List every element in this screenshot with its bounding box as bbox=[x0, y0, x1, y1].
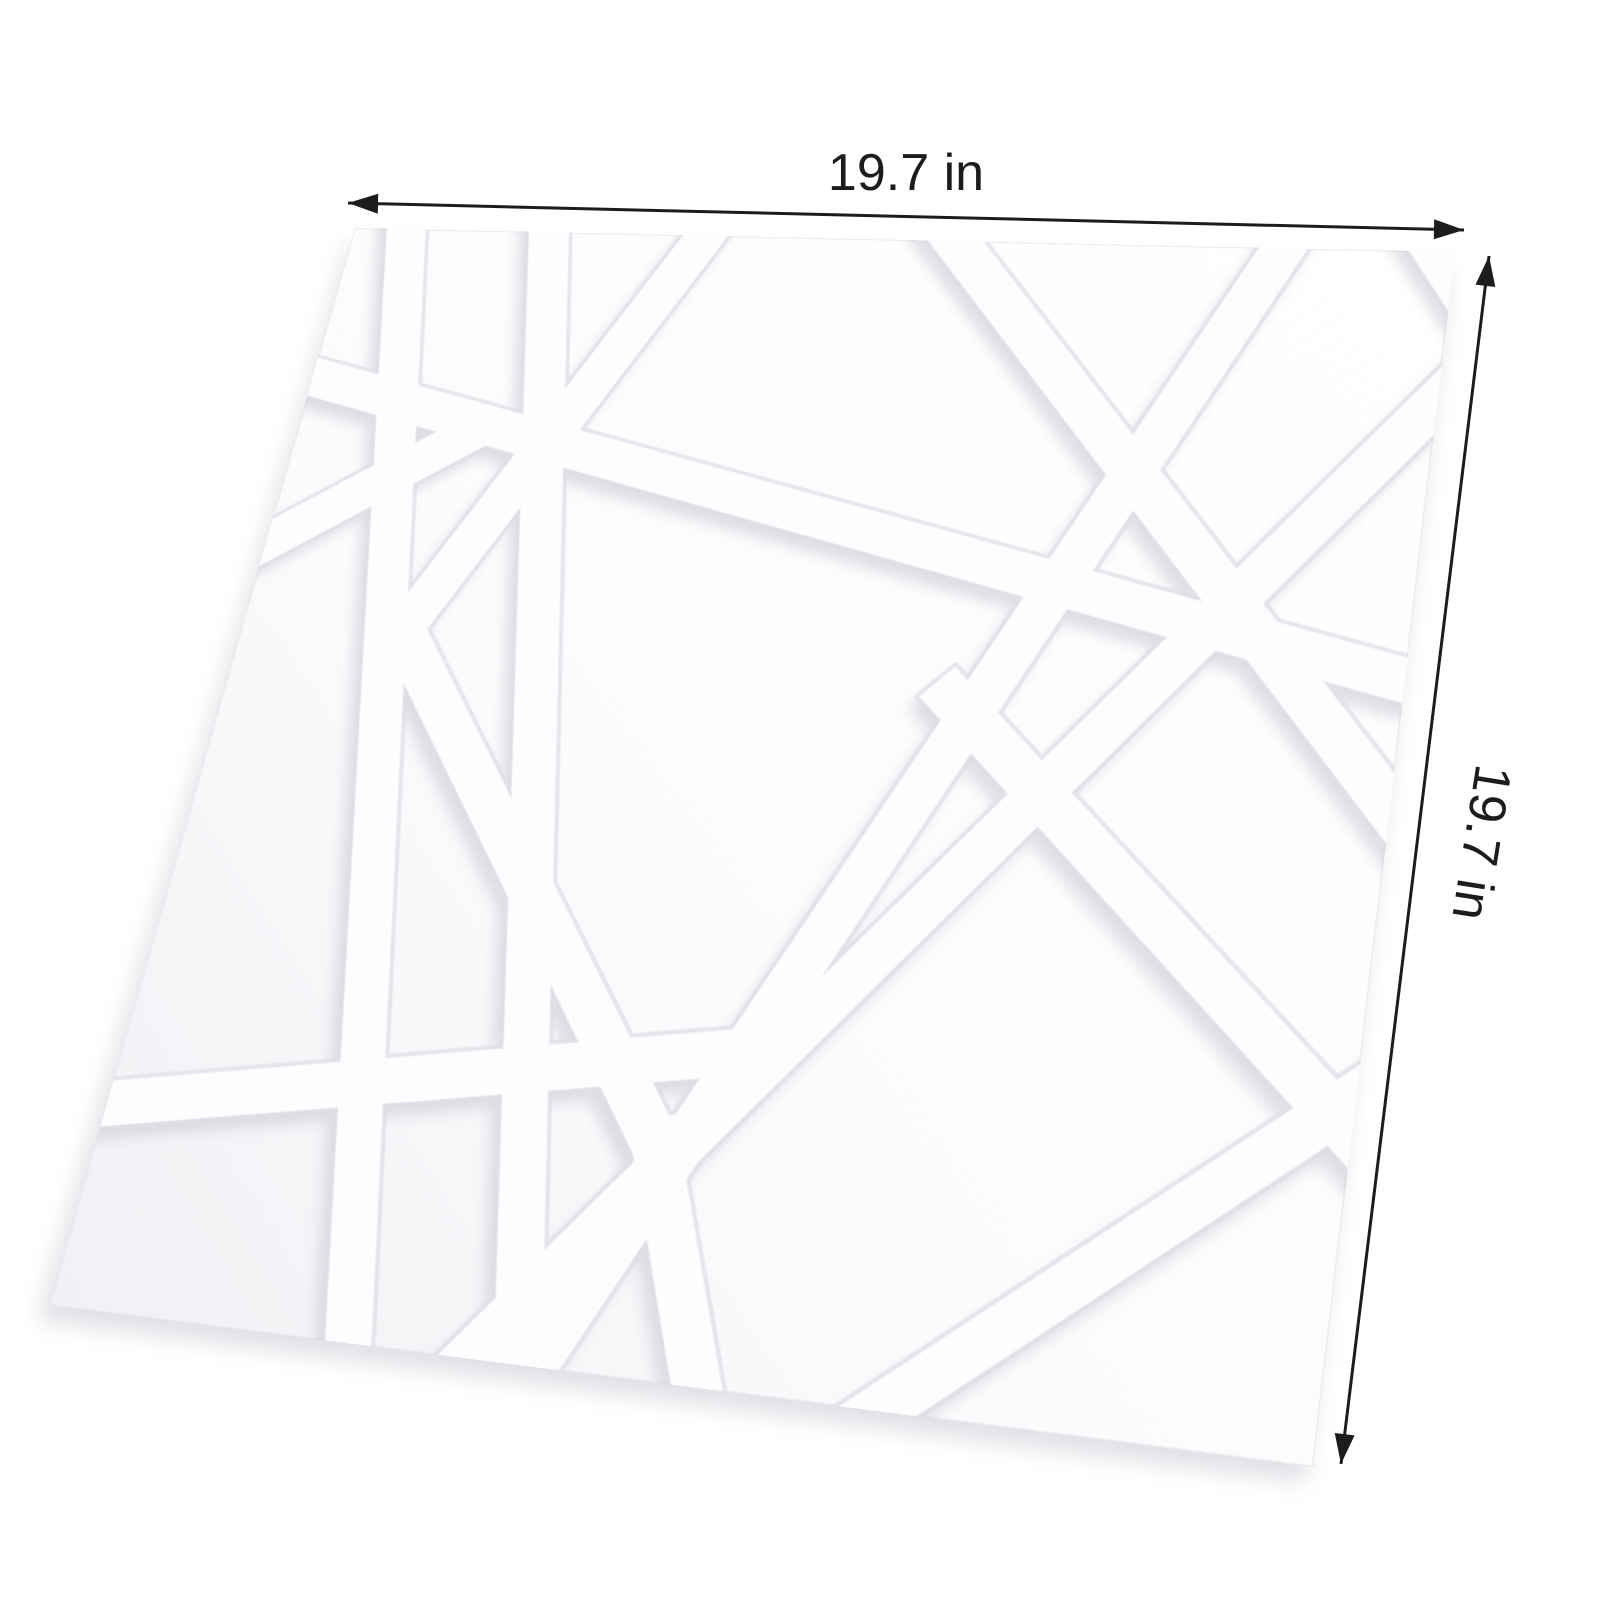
arrow-down-icon bbox=[1335, 1433, 1355, 1464]
product-dimension-image: 19.7 in 19.7 in bbox=[0, 0, 1600, 1600]
arrow-left-icon bbox=[348, 194, 378, 214]
width-dimension-label: 19.7 in bbox=[828, 144, 984, 202]
height-dimension-label: 19.7 in bbox=[1440, 761, 1522, 924]
dimension-annotations: 19.7 in 19.7 in bbox=[0, 0, 1600, 1600]
arrow-right-icon bbox=[1434, 219, 1464, 239]
arrow-up-icon bbox=[1476, 256, 1496, 287]
width-dimension-line bbox=[348, 203, 1464, 230]
